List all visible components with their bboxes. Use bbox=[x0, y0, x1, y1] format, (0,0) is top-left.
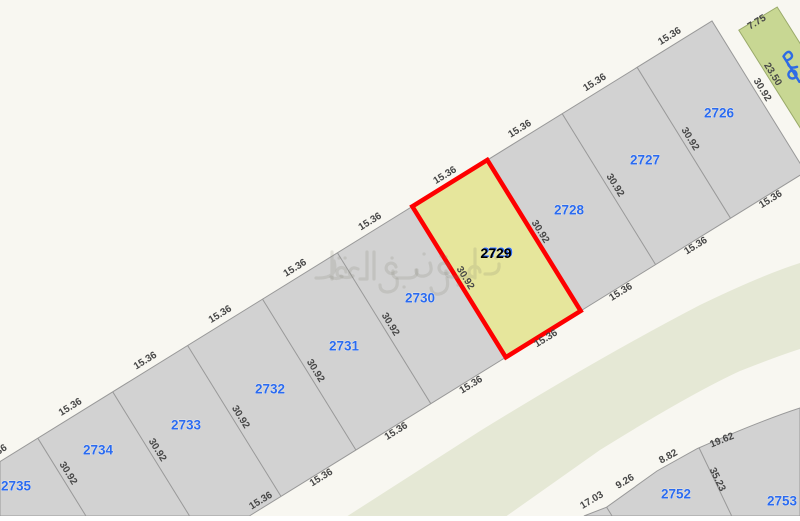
svg-text:2726: 2726 bbox=[704, 106, 735, 121]
svg-text:2728: 2728 bbox=[554, 203, 585, 218]
svg-text:2731: 2731 bbox=[329, 339, 360, 354]
svg-text:2733: 2733 bbox=[171, 418, 202, 433]
svg-text:2753: 2753 bbox=[767, 494, 798, 509]
svg-text:2732: 2732 bbox=[255, 382, 285, 397]
svg-text:2729: 2729 bbox=[480, 245, 511, 261]
svg-text:2727: 2727 bbox=[630, 153, 660, 168]
svg-text:2752: 2752 bbox=[661, 487, 691, 502]
svg-text:2730: 2730 bbox=[405, 291, 435, 306]
svg-text:2734: 2734 bbox=[83, 443, 114, 458]
svg-text:2735: 2735 bbox=[1, 479, 32, 494]
